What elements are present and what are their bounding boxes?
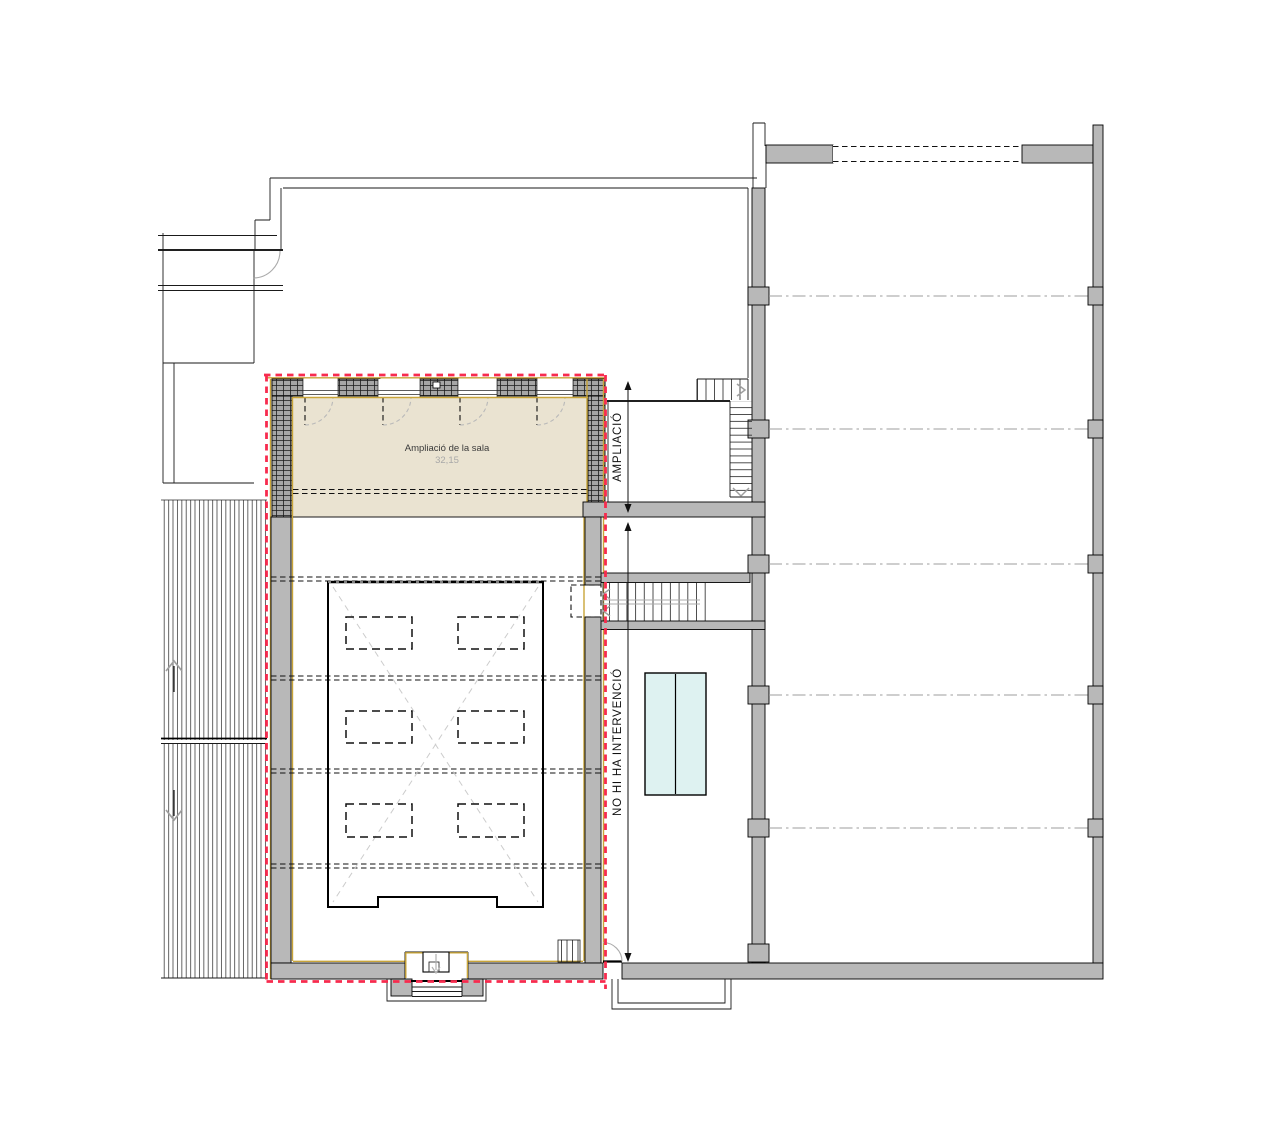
column xyxy=(1088,819,1103,837)
hall-east-wall-lower xyxy=(585,617,601,963)
column xyxy=(748,287,769,305)
column xyxy=(1088,555,1103,573)
room-name-label: Ampliació de la sala xyxy=(405,443,490,454)
ramp-lower-hatch xyxy=(161,744,267,978)
south-wall xyxy=(622,963,1103,979)
column xyxy=(748,686,769,704)
column xyxy=(1088,287,1103,305)
floor-plan-svg: Ampliació de la sala 32,15 xyxy=(0,0,1276,1134)
hall-west-wall xyxy=(271,517,291,963)
corridor-stair-treads xyxy=(603,583,707,621)
corridor-wall-north xyxy=(601,573,750,583)
ampliacio-east-pier xyxy=(588,379,605,502)
exit-steps xyxy=(558,940,580,962)
top-wall-segment-right xyxy=(1022,145,1093,163)
floor-plan-page: Ampliació de la sala 32,15 xyxy=(0,0,1276,1134)
room-area-label: 32,15 xyxy=(435,455,459,466)
dim-label-ampliacio: AMPLIACIÓ xyxy=(611,412,624,482)
facade-pier xyxy=(272,379,303,396)
wall-vent xyxy=(433,382,440,388)
corridor-wall-south xyxy=(588,621,765,630)
ramp-upper-hatch xyxy=(161,500,267,740)
top-wall-segment-left xyxy=(766,145,833,163)
column xyxy=(748,555,769,573)
column xyxy=(1088,686,1103,704)
column xyxy=(1088,420,1103,438)
top-wall-window-opening xyxy=(833,145,1022,163)
column xyxy=(748,944,769,962)
hall-east-wall-upper xyxy=(585,517,601,585)
facade-pier xyxy=(338,379,380,396)
facade-pier xyxy=(573,379,605,396)
south-wall xyxy=(271,963,405,979)
dim-label-no-intervencio: NO HI HA INTERVENCIÓ xyxy=(611,668,624,816)
column xyxy=(748,819,769,837)
ramp-area xyxy=(161,500,267,978)
separating-wall-band xyxy=(583,502,765,517)
ampliacio-west-wall xyxy=(272,379,292,517)
south-wall xyxy=(468,963,603,979)
facade-pier xyxy=(497,379,537,396)
